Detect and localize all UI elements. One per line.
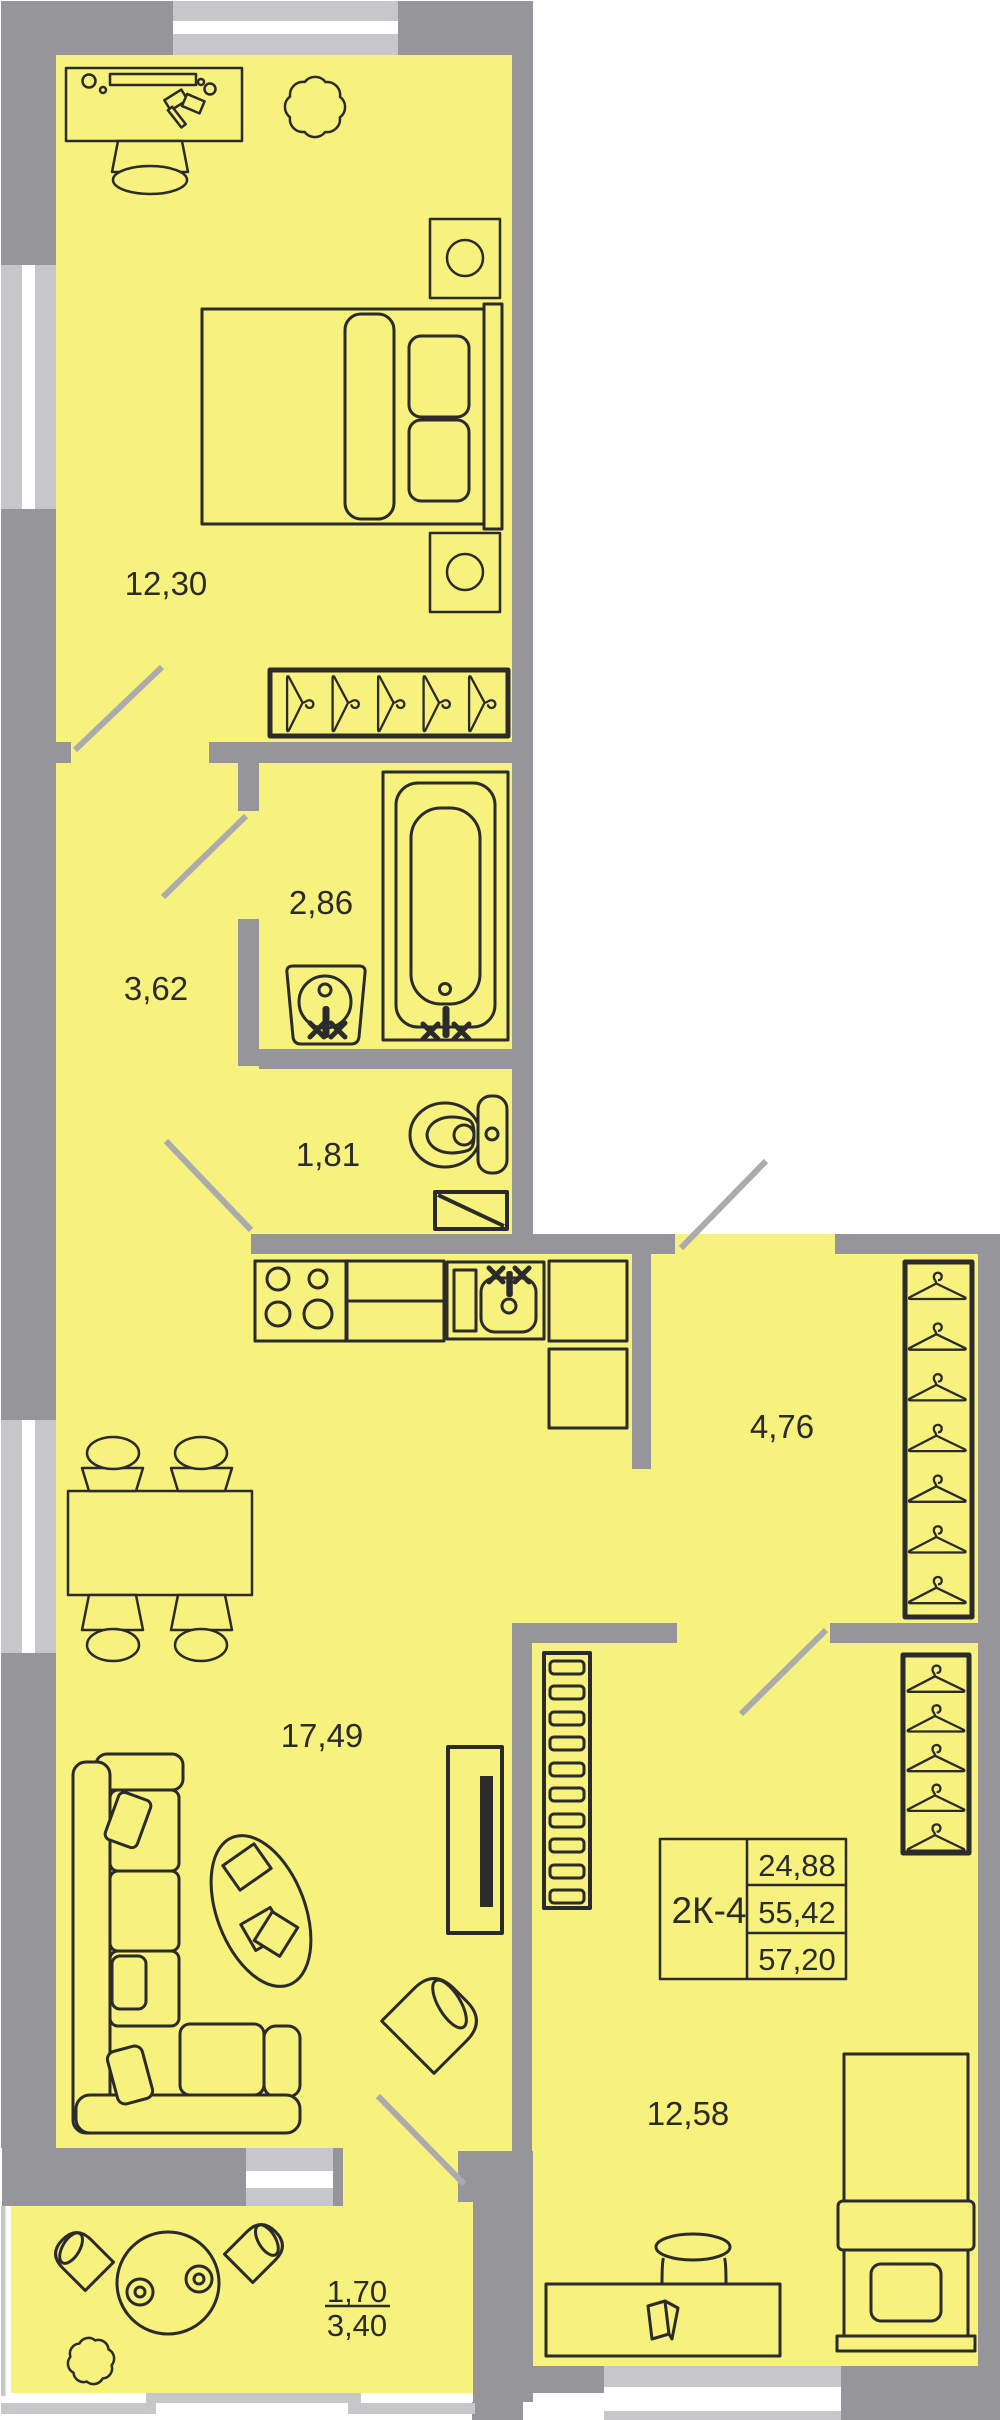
svg-text:1,70: 1,70 xyxy=(327,2274,387,2309)
svg-text:2,86: 2,86 xyxy=(289,884,353,921)
svg-text:17,49: 17,49 xyxy=(281,1717,364,1754)
svg-text:2К-4: 2К-4 xyxy=(671,1890,746,1931)
svg-text:3,40: 3,40 xyxy=(327,2308,387,2343)
svg-text:24,88: 24,88 xyxy=(758,1848,836,1883)
svg-text:55,42: 55,42 xyxy=(758,1895,836,1930)
svg-text:12,30: 12,30 xyxy=(125,565,208,602)
svg-text:57,20: 57,20 xyxy=(758,1942,836,1977)
svg-text:3,62: 3,62 xyxy=(124,970,188,1007)
svg-text:4,76: 4,76 xyxy=(750,1408,814,1445)
svg-text:1,81: 1,81 xyxy=(296,1136,360,1173)
svg-text:12,58: 12,58 xyxy=(647,2095,730,2132)
